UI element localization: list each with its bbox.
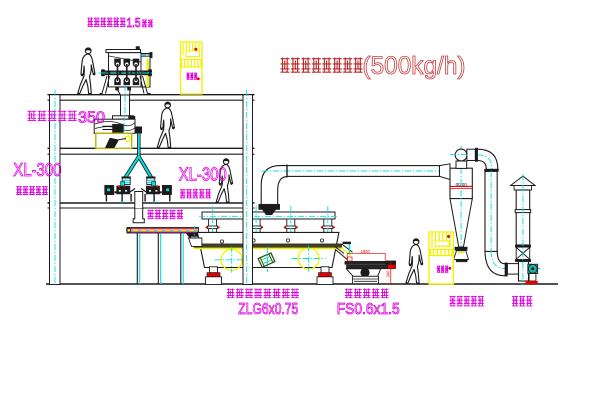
svg-text:1.5: 1.5: [127, 16, 141, 30]
svg-text:1500: 1500: [361, 249, 371, 254]
svg-text:XL-300: XL-300: [13, 159, 61, 180]
svg-text:FS0.6x1.5: FS0.6x1.5: [337, 301, 400, 318]
svg-text:ZLG6x0.75: ZLG6x0.75: [238, 301, 298, 318]
svg-text:340: 340: [386, 270, 391, 278]
svg-text:350: 350: [78, 110, 105, 127]
svg-text:(500kg/h): (500kg/h): [363, 52, 466, 80]
svg-text:XL-300: XL-300: [179, 164, 227, 185]
